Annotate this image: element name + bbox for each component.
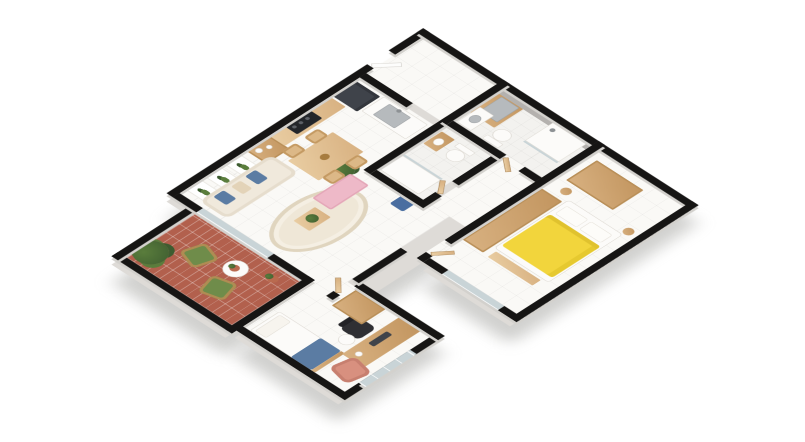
- bedroom2-door-leaf: [335, 278, 341, 293]
- floorplan-render: [0, 0, 805, 442]
- isometric-scene: [25, 6, 716, 442]
